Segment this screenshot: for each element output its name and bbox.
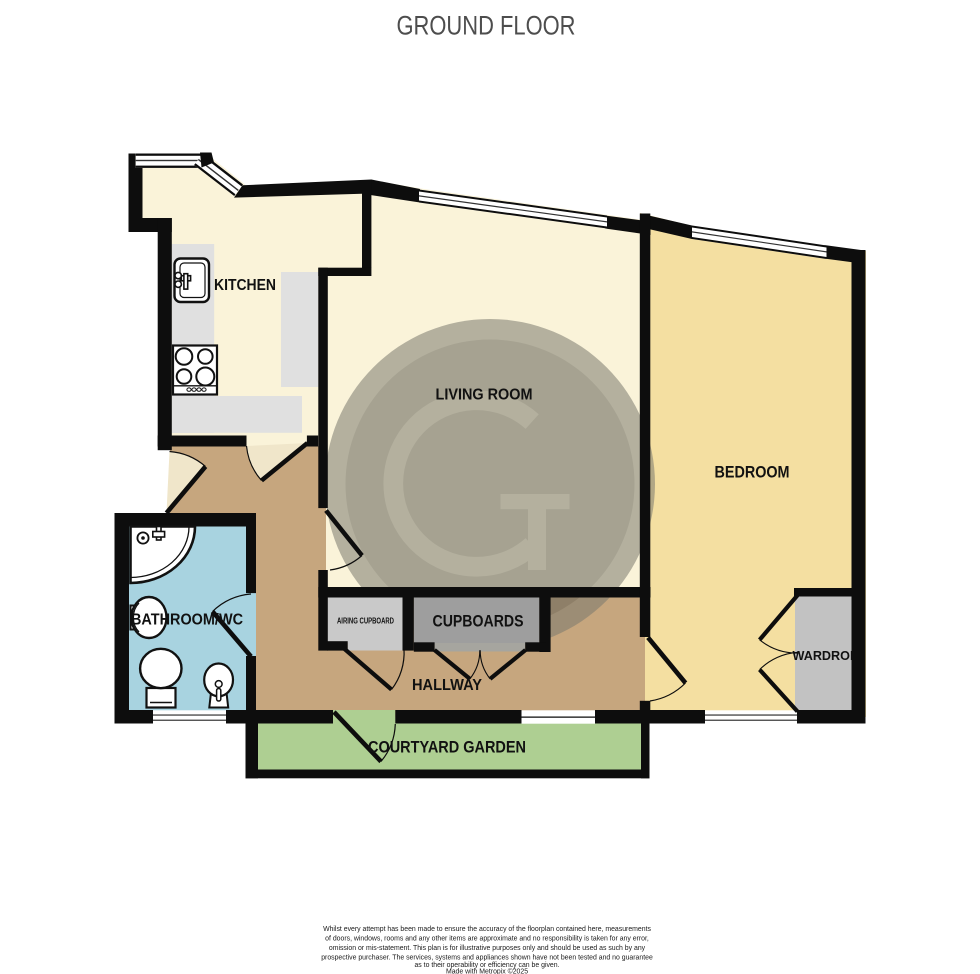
svg-text:LIVING ROOM: LIVING ROOM <box>436 386 533 403</box>
svg-text:KITCHEN: KITCHEN <box>214 277 276 294</box>
svg-text:Whilst every attempt has been: Whilst every attempt has been made to en… <box>323 926 651 933</box>
svg-text:Made with Metropix ©2025: Made with Metropix ©2025 <box>446 968 528 974</box>
svg-text:GROUND FLOOR: GROUND FLOOR <box>397 10 576 40</box>
svg-text:COURTYARD GARDEN: COURTYARD GARDEN <box>368 737 526 756</box>
svg-text:prospective purchaser. The ser: prospective purchaser. The services, sys… <box>321 955 653 962</box>
svg-text:HALLWAY: HALLWAY <box>412 677 482 694</box>
svg-text:CUPBOARDS: CUPBOARDS <box>433 612 524 631</box>
svg-text:omission or mis-statement. Thi: omission or mis-statement. This plan is … <box>329 945 646 952</box>
svg-text:of doors, windows, rooms and a: of doors, windows, rooms and any other i… <box>325 935 649 942</box>
svg-text:BEDROOM: BEDROOM <box>715 463 790 482</box>
svg-text:AIRING CUPBOARD: AIRING CUPBOARD <box>337 616 394 625</box>
svg-text:BATHROOM/WC: BATHROOM/WC <box>131 611 243 628</box>
